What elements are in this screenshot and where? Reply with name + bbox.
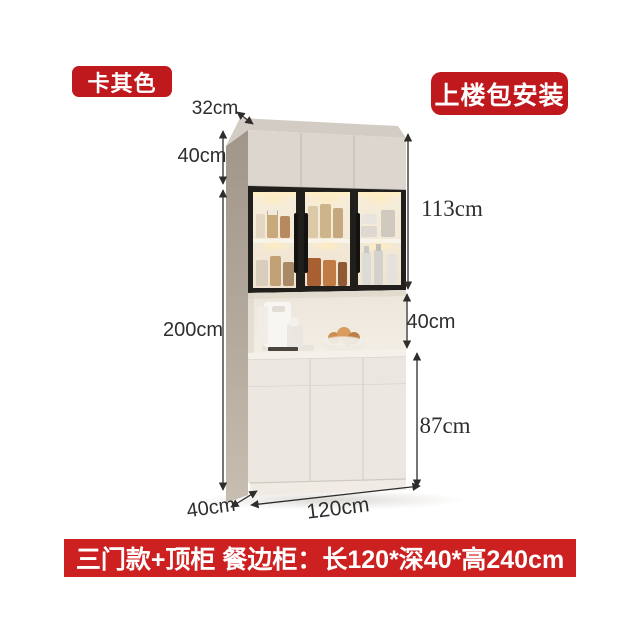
dim-label-shelf-height: 40cm xyxy=(407,311,456,333)
open-shelf xyxy=(248,290,406,353)
lower-doors xyxy=(248,384,406,483)
glass-door-handle xyxy=(356,213,360,273)
dim-label-top-cabinet-height: 40cm xyxy=(178,145,227,167)
color-badge: 卡其色 xyxy=(72,66,172,97)
dim-label-glass-height: 113cm xyxy=(421,196,483,221)
service-badge: 上楼包安装 xyxy=(431,72,568,115)
glass-door-handle xyxy=(304,213,308,273)
glass-cabinet xyxy=(248,186,406,293)
spec-banner: 三门款+顶柜 餐边柜：长120*深40*高240cm xyxy=(64,539,576,577)
dim-label-base-height: 87cm xyxy=(419,413,470,438)
product-image: 32cm 40cm 200cm 113cm 40cm 87cm 40cm 120… xyxy=(0,0,640,640)
cabinet-side-face xyxy=(226,130,248,503)
glass-door-handle xyxy=(294,213,298,273)
dim-label-total-height: 200cm xyxy=(163,319,223,341)
dim-label-base-depth: 40cm xyxy=(185,494,236,523)
dim-label-top-depth: 32cm xyxy=(192,98,238,119)
drawer-row xyxy=(248,357,406,387)
top-cabinet xyxy=(248,130,406,190)
cabinet-drawing xyxy=(226,118,406,503)
